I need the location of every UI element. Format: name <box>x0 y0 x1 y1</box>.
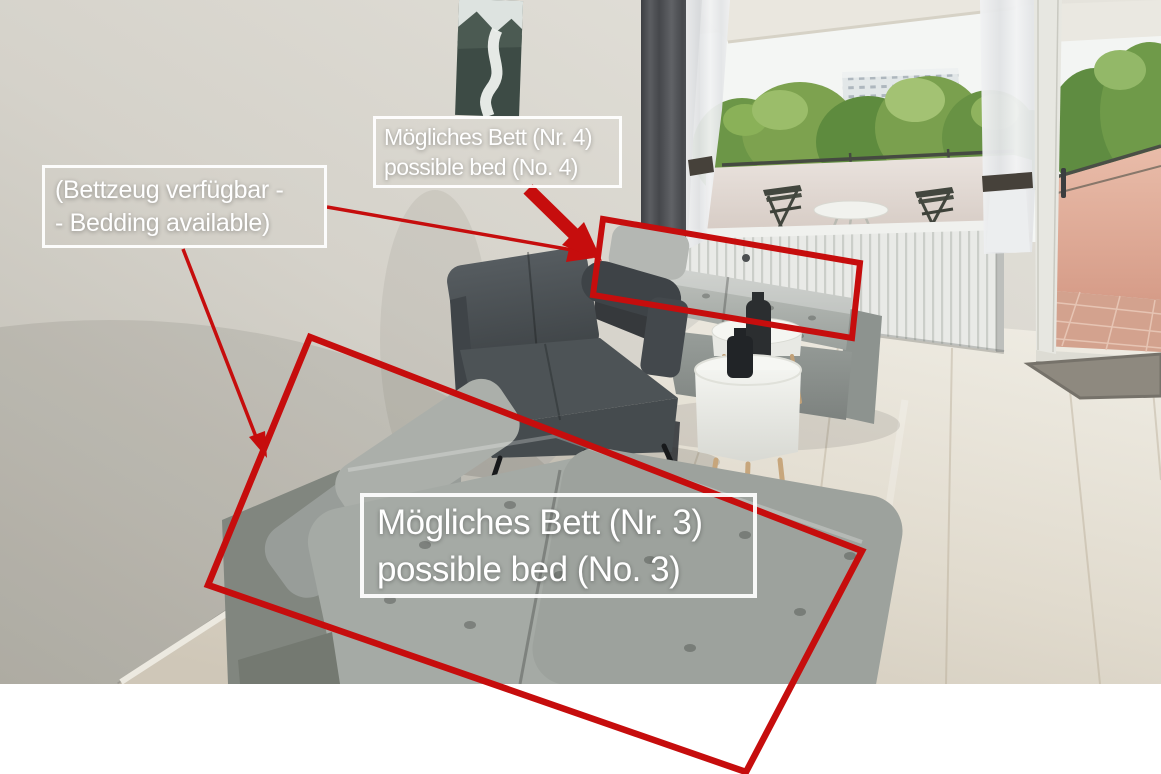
wall-art <box>455 0 523 117</box>
bed3-label-line1: Mögliches Bett (Nr. 3) <box>377 499 753 546</box>
bed3-label-line2: possible bed (No. 3) <box>377 546 753 593</box>
bed4-label-line1: Mögliches Bett (Nr. 4) <box>384 122 619 152</box>
label-box-bed4: Mögliches Bett (Nr. 4) possible bed (No.… <box>373 116 622 188</box>
door-top-rail <box>1052 0 1161 42</box>
bedding-note-line1: (Bettzeug verfügbar - <box>55 174 324 207</box>
label-box-bed3: Mögliches Bett (Nr. 3) possible bed (No.… <box>360 493 757 598</box>
radiator-valve <box>742 254 750 262</box>
bed4-label-line2: possible bed (No. 4) <box>384 152 619 182</box>
bedding-note-line2: - Bedding available) <box>55 207 324 240</box>
label-box-bedding-note: (Bettzeug verfügbar - - Bedding availabl… <box>42 165 327 248</box>
door-handle <box>1061 168 1066 198</box>
annotated-apartment-photo: (Bettzeug verfügbar - - Bedding availabl… <box>0 0 1161 774</box>
